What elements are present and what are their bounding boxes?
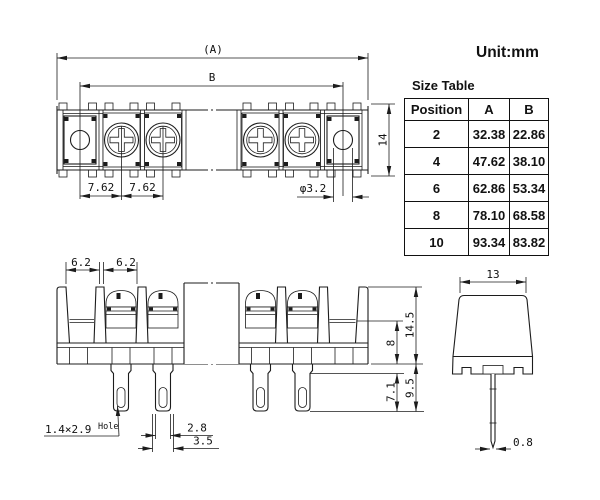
dim-overall-height-label: 14.5 xyxy=(404,312,417,339)
column-header-a: A xyxy=(469,99,510,121)
terminal-screw-top-4 xyxy=(284,113,321,167)
terminal-screw-front-2 xyxy=(148,291,178,329)
position-value: 6 xyxy=(405,175,469,202)
solder-pin-4 xyxy=(293,364,313,411)
dim-pitch-1-label: 7.62 xyxy=(88,181,115,194)
column-header-position: Position xyxy=(405,99,469,121)
table-row: 8 78.10 68.58 xyxy=(405,202,549,229)
a-value: 62.86 xyxy=(469,175,510,202)
unit-label: Unit:mm xyxy=(476,44,539,62)
dim-body-height-label: 8 xyxy=(385,340,398,347)
side-view: 13 0.8 xyxy=(453,268,533,449)
solder-pin-2 xyxy=(153,364,173,411)
dim-mounting-span-label: B xyxy=(209,71,216,84)
terminal-screw-top-3 xyxy=(242,113,279,167)
dim-overall-length-label: (A) xyxy=(203,43,223,56)
solder-pin-3 xyxy=(251,364,271,411)
side-center-foot xyxy=(483,366,503,375)
b-value: 38.10 xyxy=(510,148,549,175)
table-row: 4 47.62 38.10 xyxy=(405,148,549,175)
dim-pitch-2-label: 7.62 xyxy=(129,181,156,194)
size-table-title: Size Table xyxy=(412,78,475,93)
dim-depth-label: 14 xyxy=(377,133,390,147)
terminal-screw-front-3 xyxy=(246,291,276,329)
a-value: 93.34 xyxy=(469,229,510,256)
a-value: 32.38 xyxy=(469,121,510,148)
terminal-screw-front-1 xyxy=(106,291,136,329)
position-value: 4 xyxy=(405,148,469,175)
dim-pin-base-width-label: 3.5 xyxy=(193,435,213,448)
position-value: 10 xyxy=(405,229,469,256)
a-value: 78.10 xyxy=(469,202,510,229)
side-body xyxy=(453,296,533,357)
break-section xyxy=(184,283,239,364)
b-value: 68.58 xyxy=(510,202,549,229)
b-value: 22.86 xyxy=(510,121,549,148)
dim-segment-2-label: 6.2 xyxy=(116,256,136,269)
pin-hole-note-word: Hole xyxy=(98,422,118,432)
terminal-screw-front-4 xyxy=(288,291,318,329)
front-view: 6.2 6.2 14.5 8 9.5 7.1 2.8 3.5 xyxy=(44,256,424,452)
column-header-b: B xyxy=(510,99,549,121)
dim-mounting-hole-label: φ3.2 xyxy=(300,182,327,195)
solder-pin-1 xyxy=(111,364,131,411)
size-table: Position A B 2 32.38 22.86 4 47.62 38.10… xyxy=(404,98,549,256)
table-row: 10 93.34 83.82 xyxy=(405,229,549,256)
dim-segment-1-label: 6.2 xyxy=(71,256,91,269)
dim-width-label: 13 xyxy=(486,268,499,281)
dim-pin-length-label: 9.5 xyxy=(404,378,417,398)
top-view: (A) B 7.62 7.62 φ3.2 14 xyxy=(57,43,395,202)
b-value: 83.82 xyxy=(510,229,549,256)
position-value: 2 xyxy=(405,121,469,148)
a-value: 47.62 xyxy=(469,148,510,175)
table-row: 2 32.38 22.86 xyxy=(405,121,549,148)
side-pin xyxy=(491,374,495,448)
pin-hole-note-label: 1.4×2.9 xyxy=(45,423,91,436)
position-value: 8 xyxy=(405,202,469,229)
dim-pin-thickness-label: 0.8 xyxy=(513,436,533,449)
b-value: 53.34 xyxy=(510,175,549,202)
dim-pin-width-label: 2.8 xyxy=(187,422,207,435)
table-row: 6 62.86 53.34 xyxy=(405,175,549,202)
terminal-block-drawing-page: (A) B 7.62 7.62 φ3.2 14 xyxy=(0,0,600,500)
dim-pin-narrow-length-label: 7.1 xyxy=(385,382,398,402)
size-table-header-row: Position A B xyxy=(405,99,549,121)
